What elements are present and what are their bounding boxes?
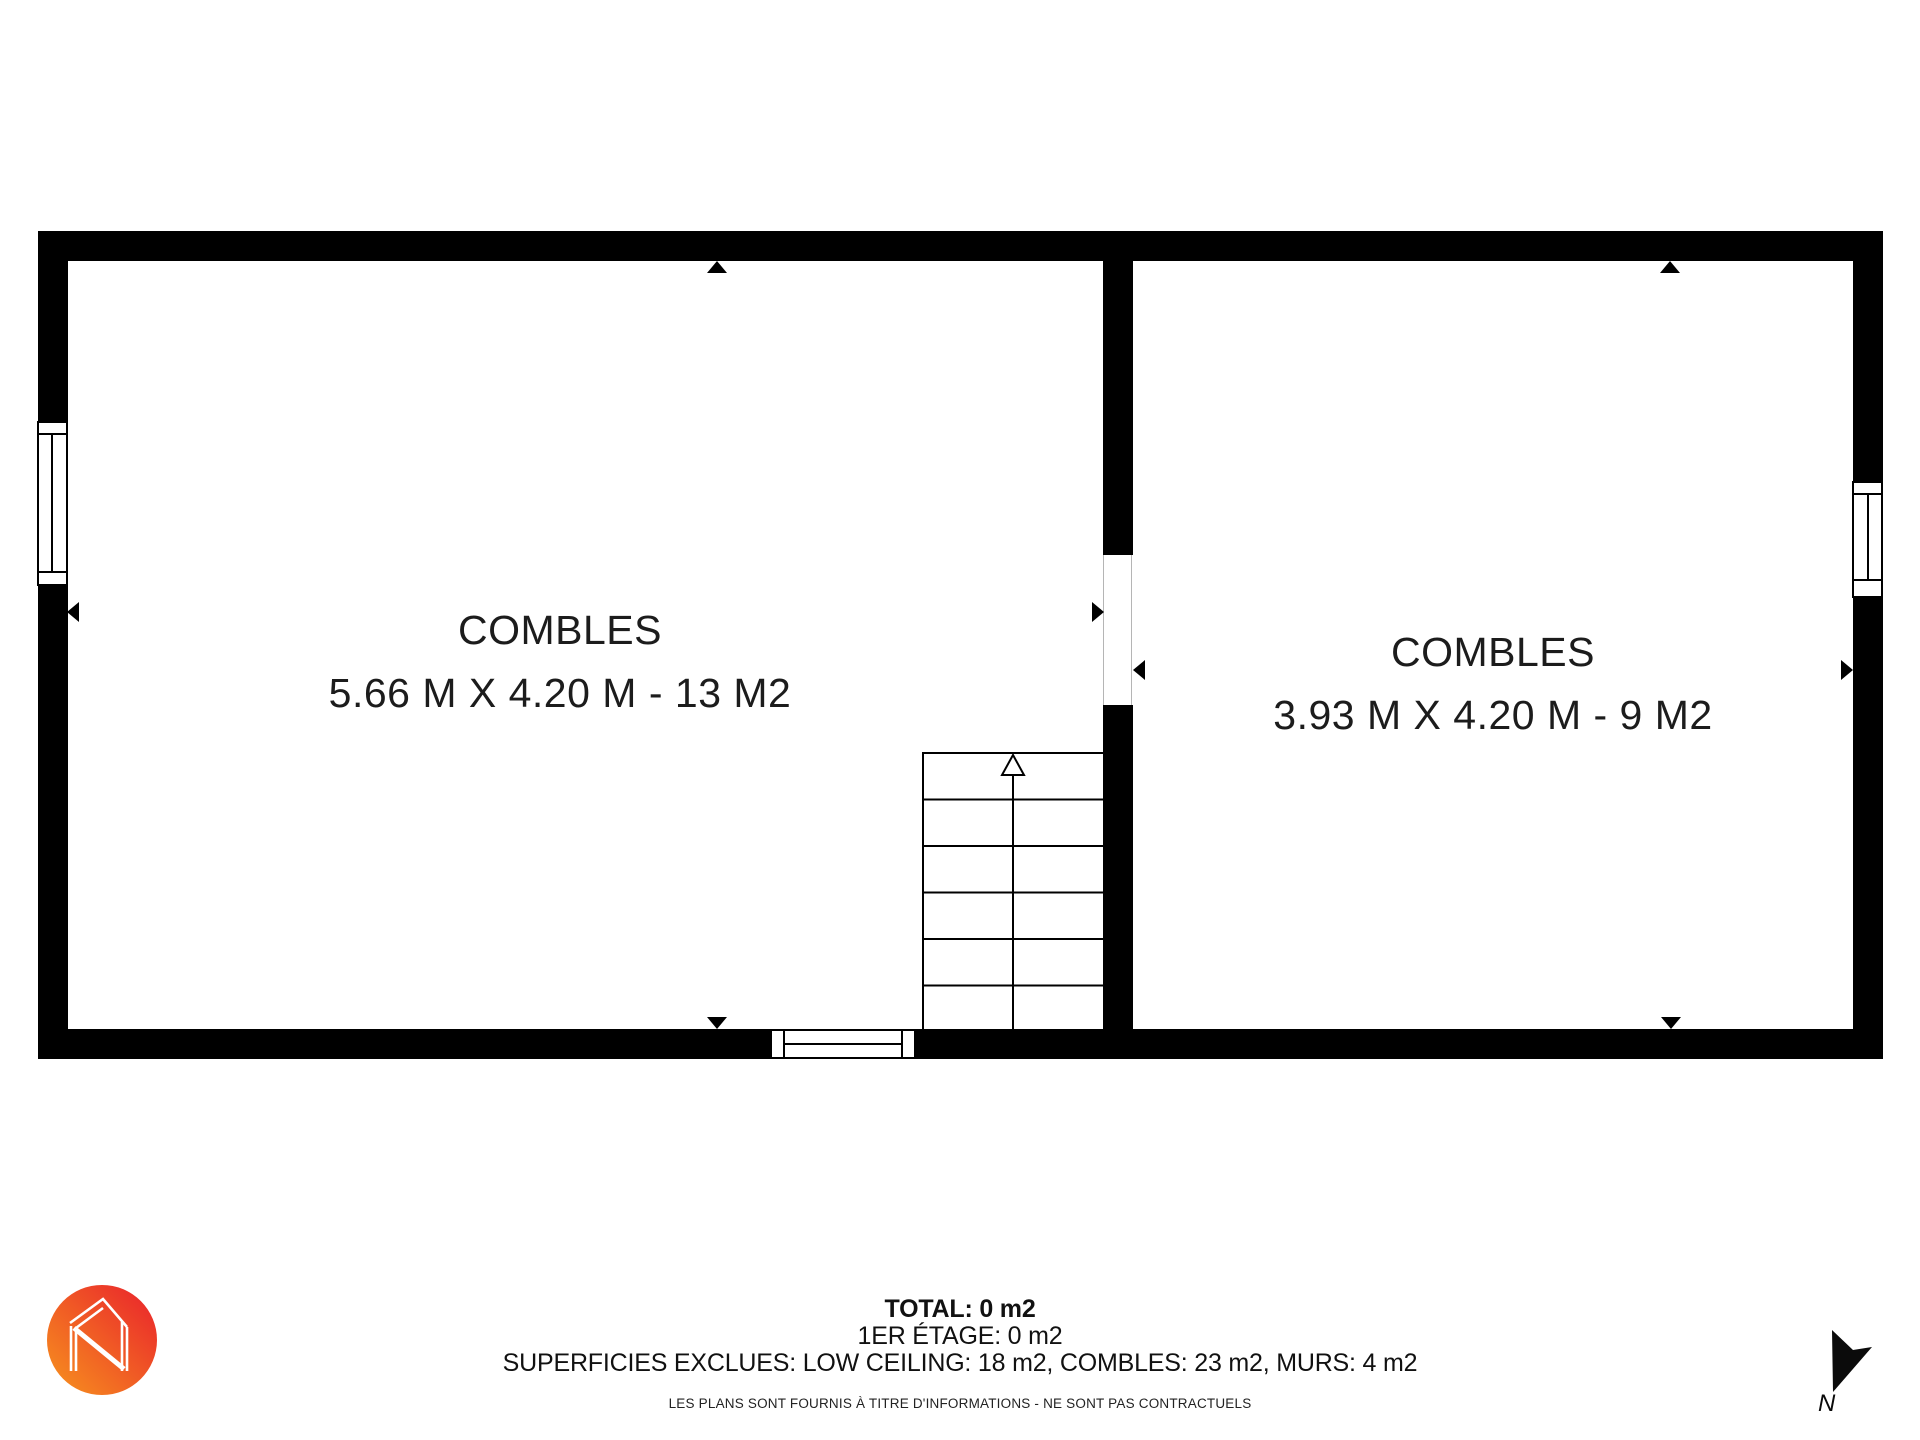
floor-area-text: 1ER ÉTAGE: 0 m2 <box>0 1323 1920 1350</box>
window-frame-line <box>901 1030 903 1058</box>
dimension-arrow-down-icon <box>1661 1017 1681 1029</box>
room-label-right: COMBLES 3.93 M X 4.20 M - 9 M2 <box>1093 621 1893 747</box>
north-label: N <box>1818 1390 1836 1417</box>
wall-divider-lower <box>1103 705 1133 1029</box>
room-dimensions: 3.93 M X 4.20 M - 9 M2 <box>1093 684 1893 747</box>
dimension-arrow-down-icon <box>707 1017 727 1029</box>
wall-divider-upper <box>1103 261 1133 555</box>
staircase <box>922 752 1104 1033</box>
floor-plan-page: COMBLES 5.66 M X 4.20 M - 13 M2 COMBLES … <box>0 0 1920 1440</box>
window-right-icon <box>1852 481 1883 598</box>
room-dimensions: 5.66 M X 4.20 M - 13 M2 <box>60 662 1060 725</box>
dimension-arrow-up-icon <box>1660 261 1680 273</box>
total-area-text: TOTAL: 0 m2 <box>0 1296 1920 1323</box>
window-glass-line <box>51 433 53 573</box>
wall-top <box>38 231 1883 261</box>
window-bottom-icon <box>770 1029 916 1059</box>
window-glass-line <box>1867 493 1869 581</box>
room-label-left: COMBLES 5.66 M X 4.20 M - 13 M2 <box>60 599 1060 725</box>
stair-up-arrow-icon <box>1002 755 1024 775</box>
north-arrow-icon: N <box>1812 1322 1882 1417</box>
room-name: COMBLES <box>60 599 1060 662</box>
window-left-icon <box>37 421 68 586</box>
house-n-logo <box>47 1285 157 1395</box>
area-summary: TOTAL: 0 m2 1ER ÉTAGE: 0 m2 SUPERFICIES … <box>0 1296 1920 1411</box>
wall-bottom <box>38 1029 1883 1059</box>
room-name: COMBLES <box>1093 621 1893 684</box>
disclaimer-text: LES PLANS SONT FOURNIS À TITRE D'INFORMA… <box>0 1396 1920 1411</box>
excluded-area-text: SUPERFICIES EXCLUES: LOW CEILING: 18 m2,… <box>0 1350 1920 1377</box>
dimension-arrow-right-icon <box>1092 602 1104 622</box>
window-glass-line <box>783 1043 901 1045</box>
dimension-arrow-up-icon <box>707 261 727 273</box>
